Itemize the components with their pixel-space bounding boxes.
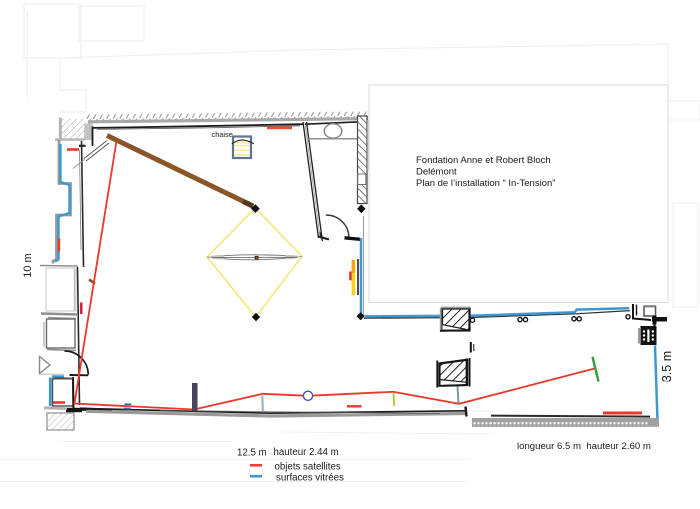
svg-text:Plan de l’installation “ In-Te: Plan de l’installation “ In-Tension” <box>416 178 555 189</box>
svg-text:10 m: 10 m <box>22 253 34 277</box>
svg-text:Delémont: Delémont <box>416 167 457 178</box>
svg-text:12.5 m: 12.5 m <box>237 448 267 459</box>
svg-text:chaise: chaise <box>212 130 233 139</box>
svg-text:Fondation Anne et Robert Bloch: Fondation Anne et Robert Bloch <box>416 155 551 166</box>
svg-text:longueur 6.5 m hauteur 2.60 m: longueur 6.5 m hauteur 2.60 m <box>517 441 651 452</box>
svg-text:surfaces vitrées: surfaces vitrées <box>276 473 344 484</box>
svg-text:hauteur 2.44 m: hauteur 2.44 m <box>274 447 339 458</box>
svg-text:3.5 m: 3.5 m <box>660 351 674 382</box>
svg-text:objets satellites: objets satellites <box>275 462 341 473</box>
